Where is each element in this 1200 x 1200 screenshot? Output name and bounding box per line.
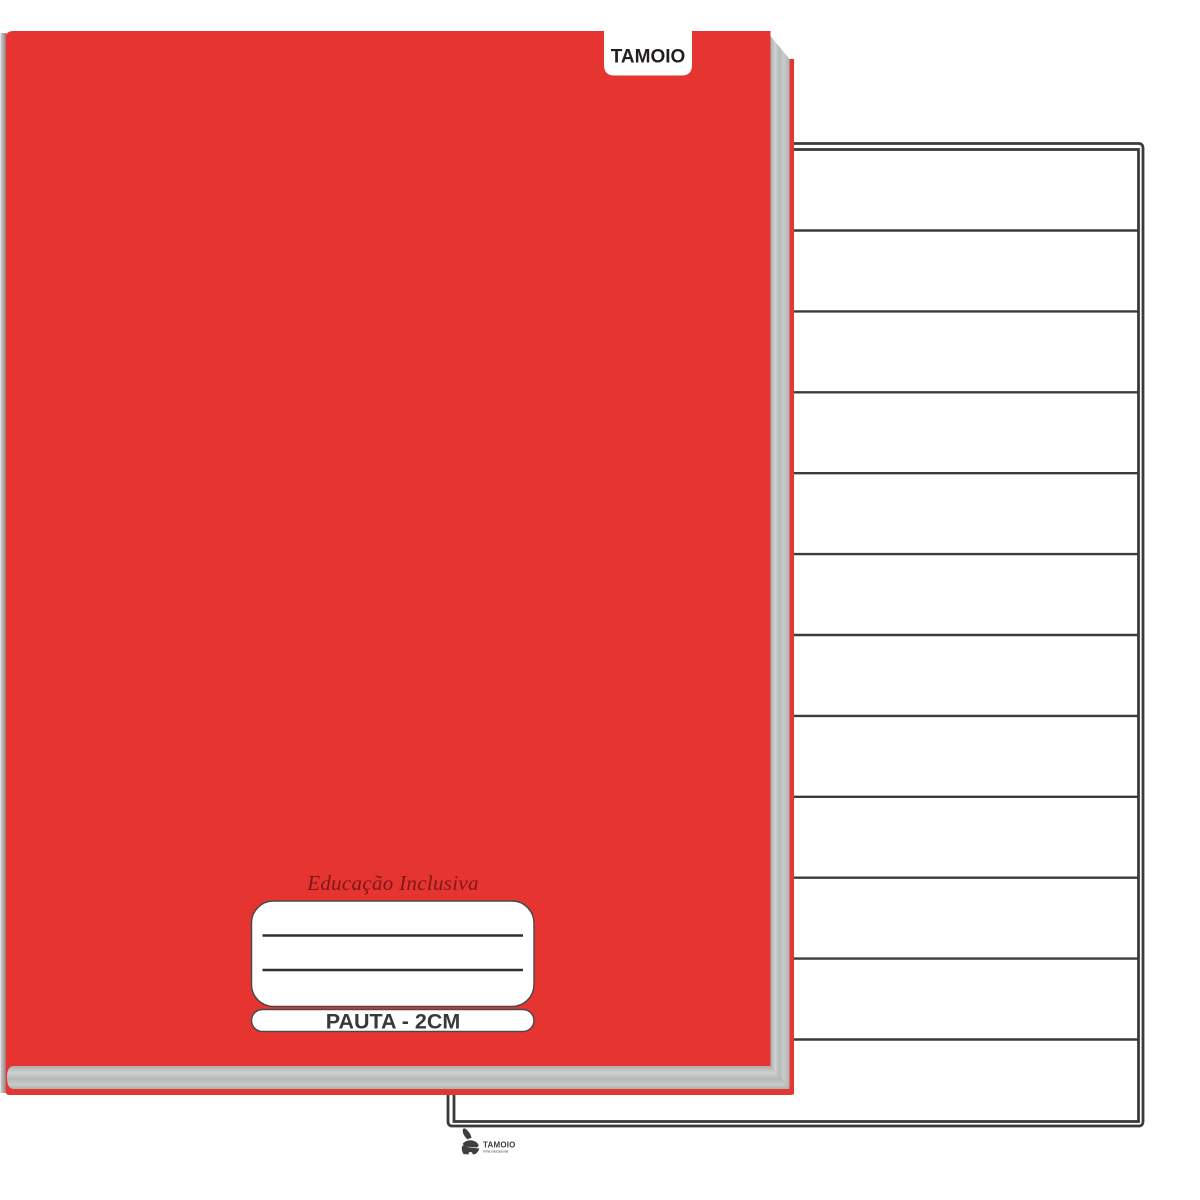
svg-text:TAMOIO: TAMOIO xyxy=(611,47,686,68)
svg-text:TAMOIO: TAMOIO xyxy=(483,1141,516,1150)
svg-text:PAUTA - 2CM: PAUTA - 2CM xyxy=(326,1010,461,1034)
svg-text:linha educacional: linha educacional xyxy=(484,1150,509,1154)
svg-text:Educação Inclusiva: Educação Inclusiva xyxy=(306,871,479,895)
